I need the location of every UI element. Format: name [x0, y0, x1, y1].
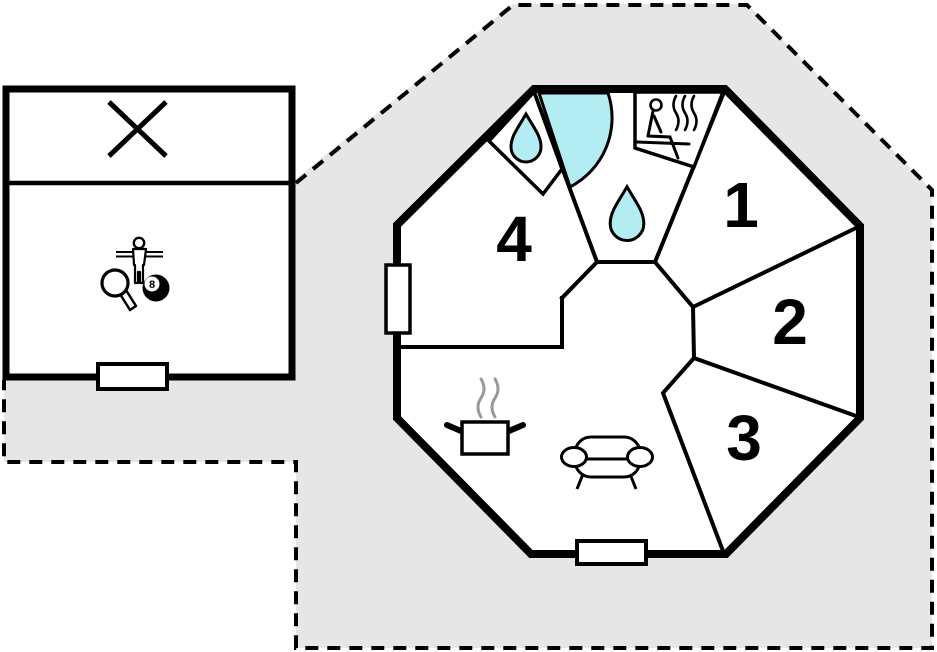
floor-plan-svg: 8	[0, 0, 937, 652]
eight-ball-number: 8	[149, 279, 155, 291]
room-4-label: 4	[496, 203, 532, 275]
room-1-label: 1	[723, 169, 759, 241]
house-window-opening	[386, 265, 410, 333]
annex-door-opening	[98, 364, 167, 389]
room-3-label: 3	[726, 402, 762, 474]
annex-outline	[6, 89, 292, 377]
billiard-8-ball-icon: 8	[143, 275, 170, 302]
wall-center-right	[693, 307, 694, 358]
floor-plan: 8	[0, 0, 937, 652]
annex-building: 8	[3, 89, 292, 389]
room-2-label: 2	[772, 286, 808, 358]
house-door-opening	[577, 541, 646, 564]
